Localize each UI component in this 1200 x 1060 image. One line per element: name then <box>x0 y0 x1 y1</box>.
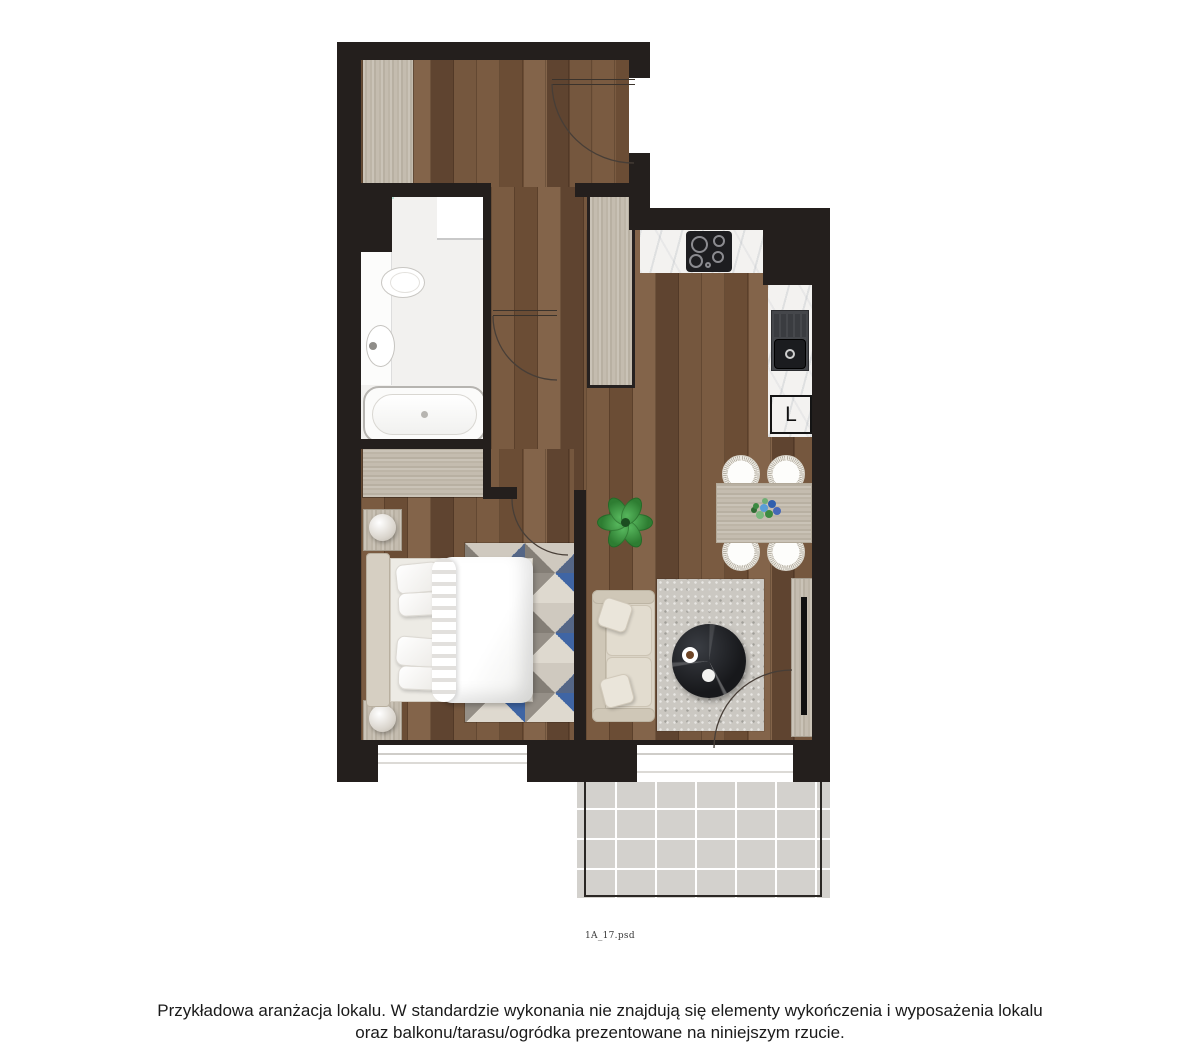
wall-bedroom-top <box>483 487 517 499</box>
entrance-door-opening <box>629 78 650 153</box>
bathtub-drain <box>421 411 428 418</box>
floor-plan-page: L <box>0 0 1200 1060</box>
wall-right <box>812 230 830 782</box>
bed-headboard <box>366 553 390 707</box>
bathroom-door-leaf <box>493 310 557 316</box>
sink-drainer <box>774 314 806 337</box>
table-centerpiece <box>753 503 759 509</box>
potted-plant <box>597 494 653 550</box>
footer-disclaimer: Przykładowa aranżacja lokalu. W standard… <box>0 1000 1200 1044</box>
burner-icon <box>713 235 725 247</box>
fridge-box: L <box>770 395 812 434</box>
entrance-door-leaf <box>552 79 635 85</box>
table-lamp <box>369 705 396 732</box>
dining-table <box>716 483 812 543</box>
sofa-armrest <box>592 708 655 722</box>
table-lamp <box>369 514 396 541</box>
burner-icon <box>689 254 703 268</box>
washing-machine <box>437 197 483 240</box>
wall-left <box>337 42 361 782</box>
wall-bedroom-living-divider <box>574 490 586 782</box>
wall-bathroom-corner <box>361 187 392 252</box>
fridge-label: L <box>785 403 797 427</box>
tv-screen <box>801 597 807 715</box>
wall-bottom-middle <box>527 740 637 782</box>
balcony-outline <box>584 779 822 897</box>
footer-disclaimer-line1: Przykładowa aranżacja lokalu. W standard… <box>0 1000 1200 1022</box>
burner-icon <box>705 262 711 268</box>
coffee-cup-drink <box>686 651 694 659</box>
burner-icon <box>691 236 708 253</box>
duvet-ruffle <box>432 558 456 702</box>
plan-filename-label: 1A_17.psd <box>585 931 635 941</box>
toilet-seat-line <box>390 272 420 293</box>
hall-tall-cabinet <box>587 190 635 388</box>
wall-bottom-right <box>793 740 830 782</box>
coffee-table <box>672 624 746 698</box>
sink-drain-icon <box>785 349 795 359</box>
balcony-door <box>637 745 793 782</box>
wall-top <box>337 42 650 60</box>
wall-bathroom-bottom <box>361 439 491 449</box>
hall-wardrobe <box>363 59 413 185</box>
wall-bottom-left <box>337 740 378 782</box>
bedroom-window <box>378 745 527 782</box>
wall-hall-cabinet <box>575 183 640 197</box>
wall-entry-upper <box>629 42 650 80</box>
bedroom-wardrobe <box>363 449 484 497</box>
table-plate <box>702 669 715 682</box>
sink-faucet <box>369 342 377 350</box>
footer-disclaimer-line2: oraz balkonu/tarasu/ogródka prezentowane… <box>0 1022 1200 1044</box>
burner-icon <box>712 251 724 263</box>
